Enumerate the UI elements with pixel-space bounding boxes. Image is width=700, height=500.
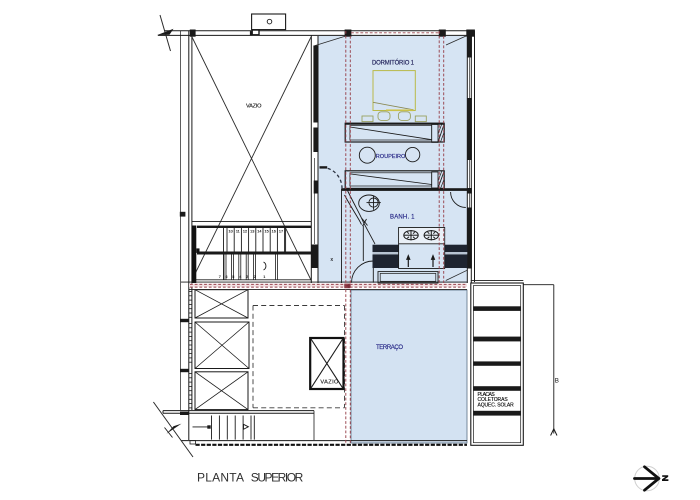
svg-text:16: 16 [272, 229, 276, 233]
svg-text:PLANTA: PLANTA [197, 470, 244, 484]
svg-text:ROUPEIRO: ROUPEIRO [376, 154, 406, 160]
svg-text:3: 3 [246, 275, 248, 279]
svg-text:VAZIO: VAZIO [320, 380, 339, 386]
svg-text:2: 2 [254, 275, 256, 279]
svg-text:11: 11 [236, 229, 240, 233]
svg-text:VAZIO: VAZIO [246, 104, 262, 110]
svg-text:15: 15 [264, 229, 268, 233]
svg-text:SUPERIOR: SUPERIOR [251, 470, 304, 484]
svg-text:10: 10 [228, 229, 232, 233]
svg-text:5: 5 [232, 275, 234, 279]
svg-text:AQUEC. SOLAR: AQUEC. SOLAR [478, 402, 515, 408]
svg-text:4: 4 [239, 275, 241, 279]
svg-text:TERRAÇO: TERRAÇO [376, 345, 403, 351]
svg-text:12: 12 [243, 229, 247, 233]
svg-text:DORMITÓRIO 1: DORMITÓRIO 1 [372, 59, 415, 66]
svg-text:14: 14 [257, 229, 261, 233]
svg-text:B: B [555, 378, 559, 385]
svg-text:17: 17 [279, 229, 283, 233]
svg-text:13: 13 [250, 229, 254, 233]
svg-text:7: 7 [219, 275, 221, 279]
svg-text:1: 1 [263, 275, 265, 279]
svg-text:6: 6 [225, 275, 227, 279]
svg-text:BANH. 1: BANH. 1 [390, 215, 415, 221]
